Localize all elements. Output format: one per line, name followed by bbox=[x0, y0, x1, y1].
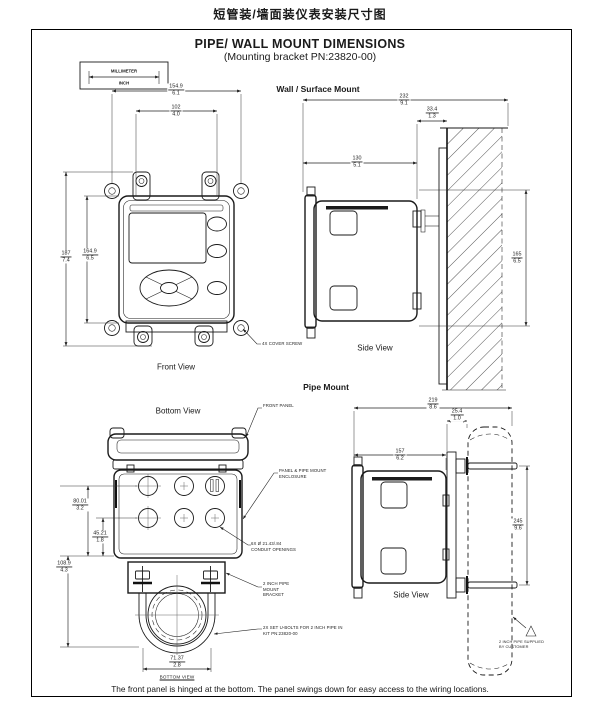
note-conduit-openings: 6X Ø 21.43/.84 CONDUIT OPENINGS bbox=[251, 541, 299, 552]
note-flag-triangle bbox=[526, 626, 536, 636]
footer-note: The front panel is hinged at the bottom.… bbox=[111, 684, 489, 694]
pipe-mount-heading: Pipe Mount bbox=[303, 382, 349, 392]
u-bolt-side bbox=[456, 457, 517, 594]
wall-side-view-label: Side View bbox=[357, 344, 392, 353]
technical-drawing bbox=[0, 0, 600, 713]
button-enter bbox=[208, 282, 227, 295]
dim-front-width-outer: 154.9 6.1 bbox=[167, 83, 185, 96]
dim-wall-depth-total: 232 9.1 bbox=[398, 93, 411, 106]
dim-pipe-offset: 25.4 1.0 bbox=[450, 408, 465, 421]
dim-opening-offset-a: 80.01 3.2 bbox=[71, 498, 89, 511]
pipe-dashed-outline bbox=[468, 427, 512, 675]
wall-mount-heading: Wall / Surface Mount bbox=[276, 84, 359, 94]
note-front-panel: FRONT PANEL bbox=[263, 403, 323, 409]
dim-pipe-depth-total: 219 8.6 bbox=[427, 397, 440, 410]
drawing-subtitle: (Mounting bracket PN:23820-00) bbox=[224, 51, 376, 63]
wall-side-view-drawing bbox=[303, 100, 530, 390]
dpad-keys bbox=[140, 270, 198, 306]
button-middle bbox=[208, 245, 227, 258]
legend-millimeter-label: MILLIMETER bbox=[110, 69, 138, 74]
conduit-openings bbox=[135, 474, 225, 530]
note-customer-pipe: 2 INCH PIPE SUPPLIED BY CUSTOMER bbox=[499, 639, 545, 649]
dim-front-height-inner: 164.9 6.5 bbox=[81, 248, 99, 261]
dim-front-height-outer: 187 7.4 bbox=[60, 250, 73, 263]
front-view-label: Front View bbox=[157, 363, 195, 372]
note-pipe-bracket: 2 INCH PIPE MOUNT BRACKET bbox=[263, 581, 299, 598]
dim-wall-enclosure-depth: 130 5.1 bbox=[351, 155, 364, 168]
note-enclosure: PANEL & PIPE MOUNT ENCLOSURE bbox=[279, 468, 327, 479]
dim-bottom-height: 108.9 4.3 bbox=[55, 560, 73, 573]
pipe-side-view-label: Side View bbox=[393, 591, 428, 600]
note-u-bolts: 2X SET U-BOLTS FOR 2 INCH PIPE IN KIT PN… bbox=[263, 625, 345, 636]
drawing-page: 短管装/墙面装仪表安装尺寸图 PIPE/ WALL MOUNT DIMENSIO… bbox=[0, 0, 600, 713]
drawing-title: PIPE/ WALL MOUNT DIMENSIONS bbox=[195, 37, 406, 51]
bottom-view-label: Bottom View bbox=[156, 407, 201, 416]
dim-pipe-enclosure-depth: 157 6.2 bbox=[394, 448, 407, 461]
wall-hatch bbox=[440, 128, 508, 390]
legend-inch-label: INCH bbox=[118, 81, 131, 86]
note-cover-screw: 4X COVER SCREW bbox=[262, 341, 324, 347]
u-bolt-nuts bbox=[133, 566, 220, 592]
dim-opening-offset-b: 45.21 1.8 bbox=[91, 530, 109, 543]
dim-wall-height: 165 6.5 bbox=[511, 251, 524, 264]
button-top bbox=[208, 217, 227, 231]
dim-u-bolt-width: 71.37 2.8 bbox=[168, 655, 186, 668]
display-screen bbox=[129, 213, 206, 263]
page-title-cn: 短管装/墙面装仪表安装尺寸图 bbox=[213, 6, 386, 23]
pipe-side-view-drawing bbox=[352, 408, 536, 675]
pipe-cross-section bbox=[135, 575, 219, 655]
front-view-drawing bbox=[63, 91, 261, 346]
dim-bolt-spacing: 245 9.6 bbox=[512, 518, 525, 531]
bottom-view-caption: BOTTOM VIEW bbox=[160, 675, 195, 680]
dim-front-width-inner: 102 4.0 bbox=[170, 104, 183, 117]
dim-wall-bracket-depth: 33.4 1.3 bbox=[425, 106, 440, 119]
